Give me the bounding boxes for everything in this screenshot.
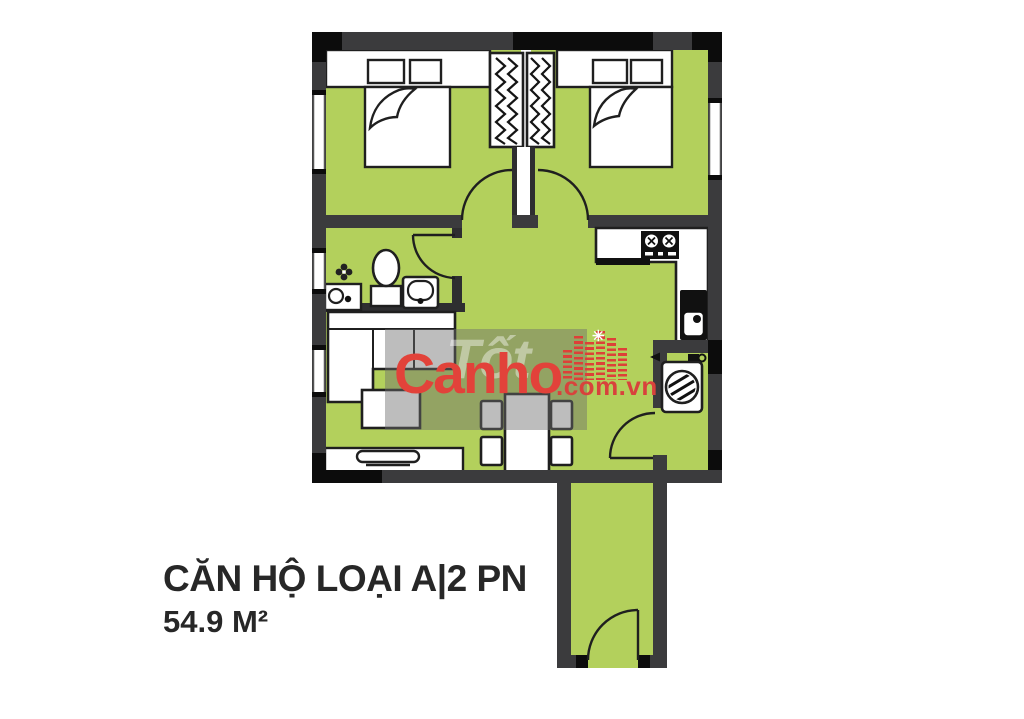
window-icon <box>710 100 721 178</box>
bedroom-divider-wall <box>512 147 535 217</box>
pillow-icon <box>410 60 441 83</box>
headboard-shelf <box>326 50 490 87</box>
chair-icon <box>481 437 502 465</box>
bed-icon <box>365 87 450 167</box>
hall-wall <box>326 215 708 228</box>
watermark-brand-text: Canho <box>394 341 561 407</box>
window-icon <box>314 347 325 395</box>
watermark-domain-text: .com.vn <box>556 371 658 402</box>
pillow-icon <box>368 60 404 83</box>
chair-icon <box>551 437 572 465</box>
toilet-icon <box>373 250 399 286</box>
tv-cabinet-icon <box>325 448 463 472</box>
washing-machine-icon <box>656 361 708 412</box>
bed-icon <box>590 87 672 167</box>
entry-corridor-floor <box>571 470 653 660</box>
wardrobe-icon <box>490 53 523 147</box>
tv-icon <box>357 451 419 462</box>
kitchen-sink-icon <box>680 290 707 340</box>
wardrobes <box>490 50 554 147</box>
sparkle-icon: ✳ <box>592 327 605 345</box>
stove-icon <box>641 231 679 259</box>
toilet-tank <box>371 286 401 306</box>
pillow-icon <box>631 60 662 83</box>
window-icon <box>314 92 325 172</box>
vanity-sink-icon <box>329 289 343 303</box>
window-icon <box>314 250 325 292</box>
apartment-type-title: CĂN HỘ LOẠI A|2 PN <box>163 558 527 600</box>
floorplan-image: Tốt Canho ✳ .com.vn CĂN HỘ LOẠI A|2 PN 5… <box>0 0 1024 719</box>
pillow-icon <box>593 60 627 83</box>
apartment-area-text: 54.9 M² <box>163 604 268 640</box>
